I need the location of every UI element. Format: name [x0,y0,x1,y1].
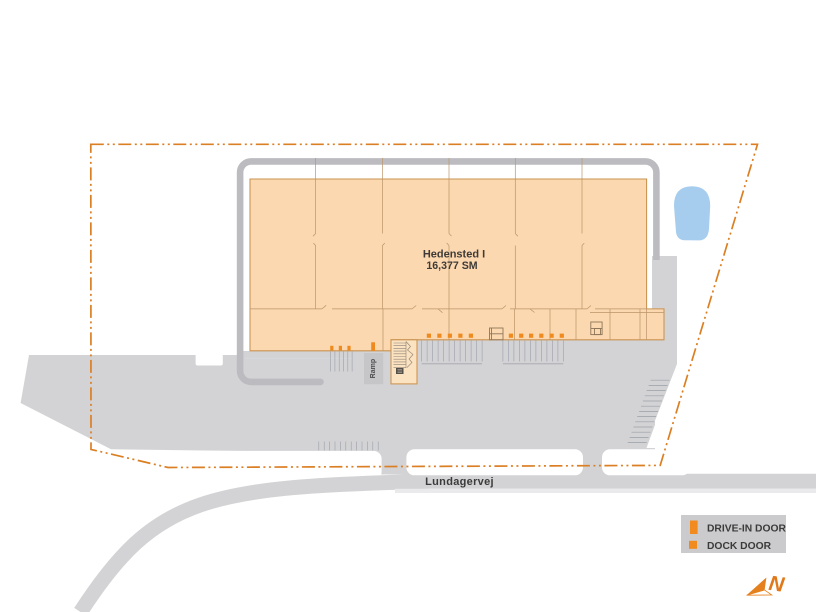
svg-text:DRIVE-IN DOOR: DRIVE-IN DOOR [707,523,787,534]
svg-text:Lundagervej: Lundagervej [425,476,494,488]
svg-text:Ramp: Ramp [370,359,377,378]
svg-text:Hedensted I: Hedensted I [423,249,485,261]
svg-text:DOCK DOOR: DOCK DOOR [707,541,772,552]
svg-text:16,377 SM: 16,377 SM [426,260,477,272]
